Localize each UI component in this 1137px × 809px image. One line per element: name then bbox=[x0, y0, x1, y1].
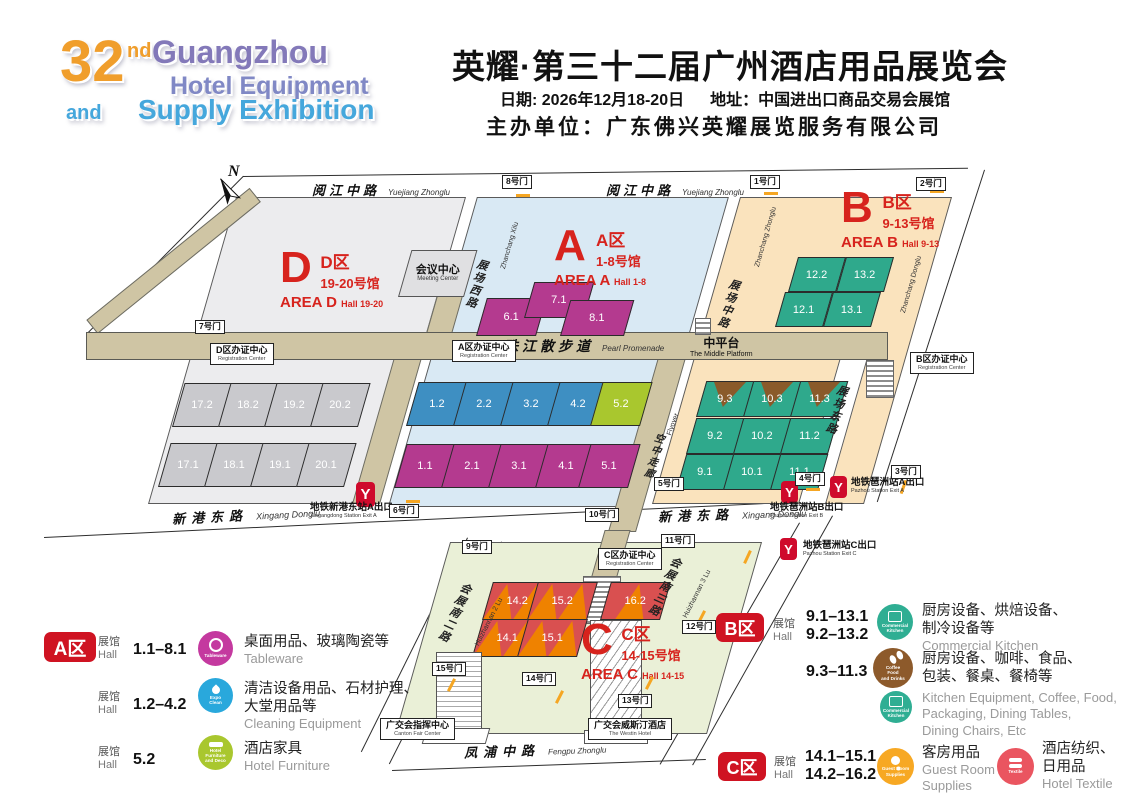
area-d-label: D D区19-20号馆 AREA D Hall 19-20 bbox=[280, 248, 383, 311]
legend-a-hall-label-3: 展馆Hall bbox=[98, 746, 120, 771]
date-address-line: 日期: 2026年12月18-20日地址：中国进出口商品交易会展馆 bbox=[500, 86, 976, 110]
legend-a-range-3: 5.2 bbox=[133, 751, 155, 769]
registration-center-c: C区办证中心Registration Center bbox=[598, 548, 662, 570]
gate-5: 5号门 bbox=[654, 477, 684, 491]
coffee-food-drinks-icon: Coffee Food and Drinks bbox=[873, 648, 913, 688]
legend-b-range-2: 9.3–11.3 bbox=[806, 663, 867, 681]
gate-6: 6号门 bbox=[389, 504, 419, 518]
legend-a-hall-label-2: 展馆Hall bbox=[98, 691, 120, 716]
middle-platform-label: 中平台The Middle Platform bbox=[690, 334, 753, 358]
legend-b-text-1: 厨房设备、烘焙设备、制冷设备等Commercial Kitchen bbox=[922, 602, 1067, 655]
exhibition-map-page: 32 nd Guangzhou Hotel Equipment and Supp… bbox=[0, 0, 1137, 809]
metro-pazhou-c-label: 地铁琶洲站C出口Pazhou Station Exit C bbox=[803, 540, 876, 558]
road-yuejiang-east: 阅江中路Yuejiang Zhonglu bbox=[606, 180, 744, 200]
legend-a-text-1: 桌面用品、玻璃陶瓷等Tableware bbox=[244, 633, 389, 667]
gate-4: 4号门 bbox=[795, 472, 825, 486]
legend-b-range-1: 9.1–13.19.2–13.2 bbox=[806, 608, 868, 645]
gate-tick-1 bbox=[764, 192, 778, 195]
tableware-icon: Tableware bbox=[198, 631, 233, 666]
legend-a-text-3: 酒店家具Hotel Furniture bbox=[244, 740, 330, 774]
gate-3: 3号门 bbox=[891, 465, 921, 479]
legend-c-text-1: 客房用品Guest RoomSupplies bbox=[922, 744, 995, 795]
legend-c-hall-label: 展馆Hall bbox=[774, 756, 796, 781]
legend-b-text-3: Kitchen Equipment, Coffee, Food,Packagin… bbox=[922, 690, 1117, 739]
gate-tick-4 bbox=[806, 488, 820, 491]
metro-pazhou-b-label: 地铁琶洲站B出口Pazhou Station Exit B bbox=[770, 502, 843, 520]
hall-13.2: 13.2 bbox=[836, 257, 894, 292]
legend-a-badge: A区 bbox=[44, 632, 96, 662]
road-yuejiang-west: 阅江中路Yuejiang Zhonglu bbox=[312, 180, 450, 200]
gate-13: 13号门 bbox=[618, 694, 652, 708]
organizer-line: 主办单位：广东佛兴英耀展览服务有限公司 bbox=[486, 111, 942, 141]
gate-2: 2号门 bbox=[916, 177, 946, 191]
registration-center-d: D区办证中心Registration Center bbox=[210, 343, 274, 365]
page-title: 英耀·第三十二届广州酒店用品展览会 bbox=[452, 40, 1008, 88]
commercial-kitchen-icon: Commercial Kitchen bbox=[877, 604, 913, 640]
gate-1: 1号门 bbox=[750, 175, 780, 189]
exhibition-date: 日期: 2026年12月18-20日 bbox=[500, 92, 684, 109]
legend-a-range-1: 1.1–8.1 bbox=[133, 641, 186, 659]
gate-14: 14号门 bbox=[522, 672, 556, 686]
logo-number: 32 bbox=[60, 28, 125, 95]
gate-tick-8 bbox=[516, 194, 530, 197]
area-c-label: C C区14-15号馆 AREA C Hall 14-15 bbox=[581, 620, 684, 683]
hall-8.1: 8.1 bbox=[560, 300, 634, 336]
textile-icon: Textile bbox=[997, 748, 1034, 785]
logo-line1: Guangzhou bbox=[152, 34, 328, 71]
westin-hotel-label: 广交会威斯汀酒店The Westin Hotel bbox=[588, 718, 672, 740]
hall-15.1: 15.1 bbox=[517, 619, 588, 657]
gate-tick-6 bbox=[406, 500, 420, 503]
canton-fair-center-label: 广交会指挥中心Canton Fair Center bbox=[380, 718, 455, 740]
road-line-fengpu bbox=[392, 759, 706, 771]
guest-room-supplies-icon: Guest Room Supplies bbox=[877, 748, 914, 785]
registration-center-b: B区办证中心Registration Center bbox=[910, 352, 974, 374]
area-b-label: B B区9-13号馆 AREA B Hall 9-13 bbox=[841, 188, 939, 251]
stairs-platform bbox=[695, 318, 711, 335]
gate-7: 7号门 bbox=[195, 320, 225, 334]
legend-a-range-2: 1.2–4.2 bbox=[133, 696, 186, 714]
expo-clean-icon: Expo Clean bbox=[198, 678, 233, 713]
gate-10: 10号门 bbox=[585, 508, 619, 522]
legend-c-text-2: 酒店纺织、日用品Hotel Textile bbox=[1042, 740, 1115, 793]
metro-pazhou-a-label: 地铁琶洲站A出口Pazhou Station Exit A bbox=[851, 477, 924, 495]
road-line-top bbox=[243, 168, 968, 177]
legend-b-text-2: 厨房设备、咖啡、食品、包装、餐桌、餐椅等 bbox=[922, 650, 1082, 686]
metro-icon-pazhou-c: Y bbox=[780, 538, 797, 560]
logo-line3: Supply Exhibition bbox=[138, 94, 374, 126]
area-a-label: A A区1-8号馆 AREA A Hall 1-8 bbox=[554, 226, 646, 289]
logo-and: and bbox=[66, 102, 102, 125]
gate-9: 9号门 bbox=[462, 540, 492, 554]
legend-c-range: 14.1–15.114.2–16.2 bbox=[805, 748, 876, 785]
legend-b-badge: B区 bbox=[716, 613, 764, 642]
legend-b-hall-label: 展馆Hall bbox=[773, 618, 795, 643]
legend-c-badge: C区 bbox=[718, 752, 766, 781]
exhibition-address: 地址：中国进出口商品交易会展馆 bbox=[710, 92, 950, 109]
gate-11: 11号门 bbox=[661, 534, 695, 548]
road-fengpu: 凤浦中路Fengpu Zhonglu bbox=[464, 738, 607, 763]
metro-icon-pazhou-a: Y bbox=[830, 476, 847, 498]
gate-12: 12号门 bbox=[682, 620, 716, 634]
promenade-label: 珠江散步道Pearl Promenade bbox=[504, 336, 664, 356]
gate-15: 15号门 bbox=[432, 662, 466, 676]
logo-ordinal: nd bbox=[127, 40, 151, 63]
registration-center-a: A区办证中心Registration Center bbox=[452, 340, 516, 362]
hotel-furniture-icon: Hotel Furniture and Deco bbox=[198, 735, 233, 770]
gate-8: 8号门 bbox=[502, 175, 532, 189]
commercial-kitchen-icon-2: Commercial Kitchen bbox=[880, 691, 912, 723]
legend-a-hall-label-1: 展馆Hall bbox=[98, 636, 120, 661]
metro-xingangdong-a-label: 地铁新港东站A出口Xingangdong Station Exit A bbox=[310, 502, 393, 520]
hall-13.1: 13.1 bbox=[823, 292, 881, 327]
stairs-east bbox=[866, 360, 894, 398]
